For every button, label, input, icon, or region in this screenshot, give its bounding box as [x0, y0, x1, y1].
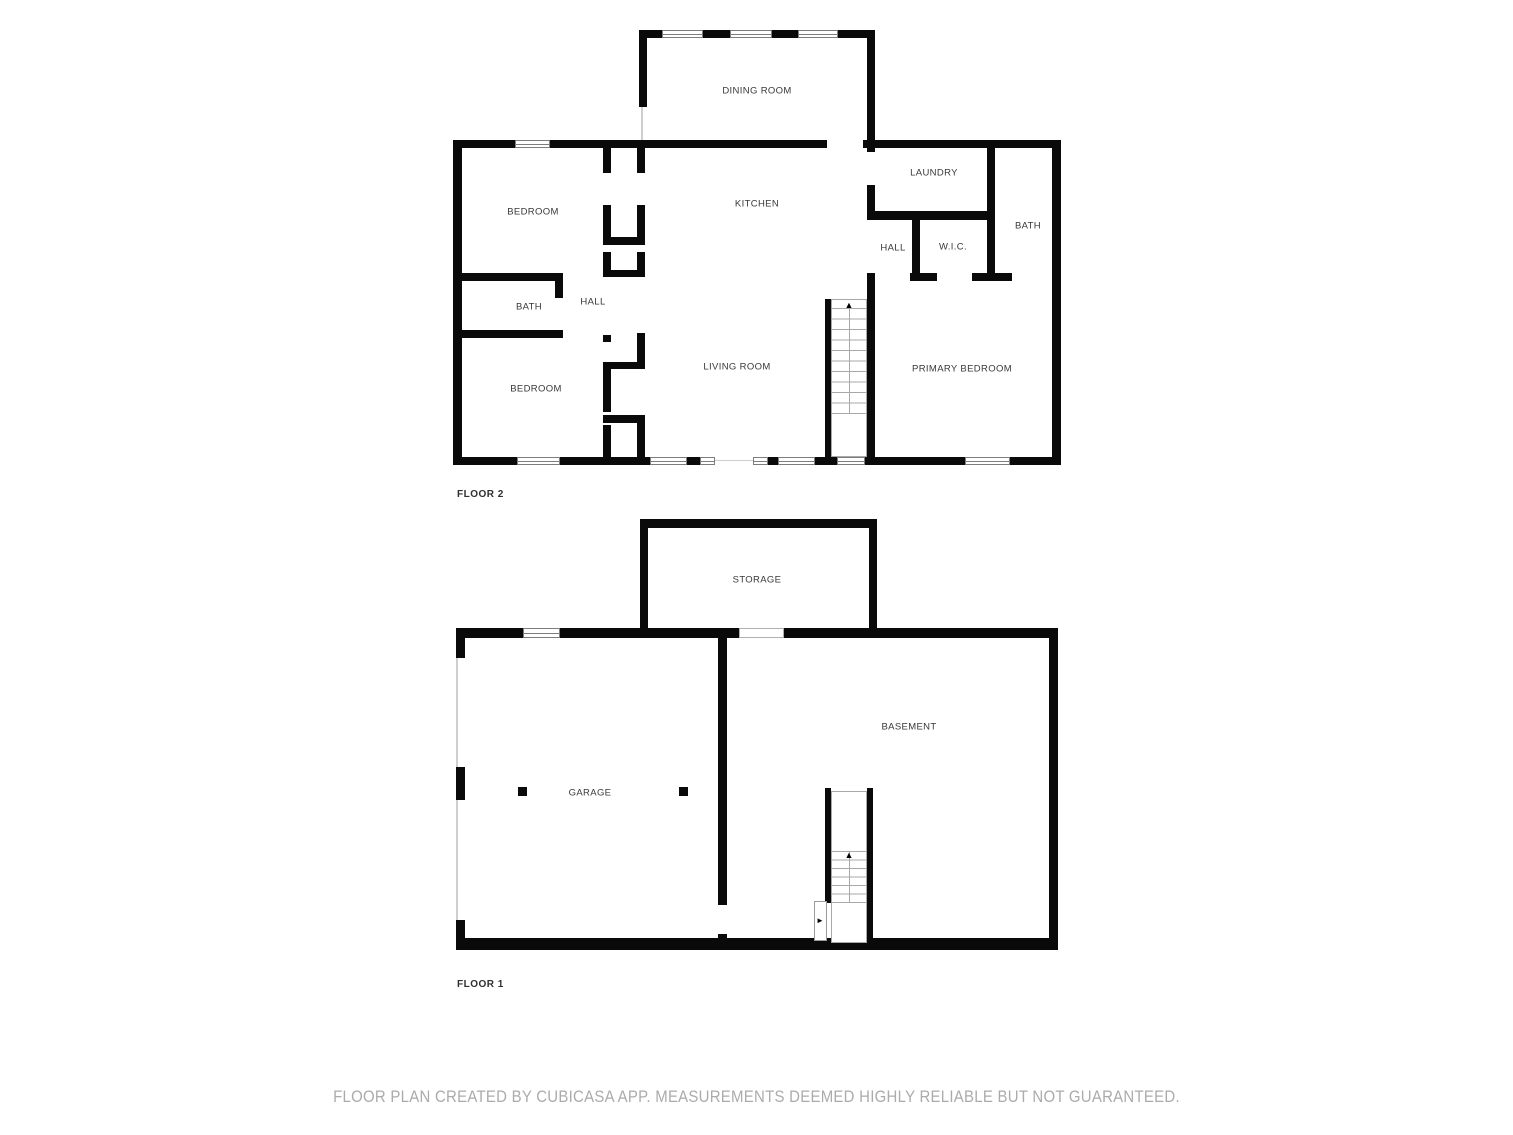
- window: [730, 30, 772, 38]
- wall: [453, 330, 563, 338]
- wall: [456, 628, 523, 638]
- wall: [815, 457, 837, 465]
- wall: [456, 767, 465, 800]
- room-label-laundry: LAUNDRY: [910, 168, 958, 179]
- wall: [603, 362, 645, 369]
- wall-opening: [456, 800, 458, 920]
- wall: [637, 148, 645, 173]
- wall: [640, 519, 877, 528]
- wall: [453, 457, 517, 465]
- wall: [784, 628, 1058, 638]
- wall-opening: [456, 658, 458, 767]
- wall: [603, 237, 645, 245]
- wall: [603, 335, 611, 342]
- room-label-living-room: LIVING ROOM: [703, 362, 770, 373]
- window: [753, 457, 768, 465]
- wall: [869, 519, 877, 638]
- room-label-bedroom-top: BEDROOM: [507, 207, 559, 218]
- garage-pillar: [679, 787, 688, 796]
- wall: [867, 185, 875, 220]
- wall: [456, 628, 465, 658]
- wall: [1049, 628, 1058, 950]
- wall: [603, 148, 611, 173]
- wall: [603, 425, 611, 457]
- wall: [867, 788, 873, 943]
- wall: [640, 519, 648, 638]
- wall: [555, 281, 563, 298]
- wall: [1010, 457, 1061, 465]
- wall: [560, 457, 650, 465]
- room-label-wic: W.I.C.: [939, 242, 967, 253]
- room-label-dining-room: DINING ROOM: [722, 86, 791, 97]
- window: [515, 140, 550, 148]
- room-label-storage: STORAGE: [733, 575, 782, 586]
- wall: [687, 457, 700, 465]
- stair-center-line: [849, 308, 850, 414]
- wall: [875, 211, 987, 220]
- stairs-up-arrow-icon: ▲: [845, 301, 854, 310]
- room-label-hall-left: HALL: [580, 297, 605, 308]
- window: [965, 457, 1010, 465]
- wall: [603, 362, 611, 412]
- window: [517, 457, 560, 465]
- wall: [910, 273, 937, 281]
- wall: [867, 140, 875, 152]
- wall: [603, 270, 645, 277]
- sliding-door-opening: [715, 460, 753, 461]
- wall: [972, 273, 1012, 281]
- wall: [863, 140, 1061, 148]
- wall: [768, 457, 778, 465]
- wall: [867, 273, 875, 457]
- footer-disclaimer: FLOOR PLAN CREATED BY CUBICASA APP. MEAS…: [91, 1087, 1422, 1107]
- window: [798, 30, 838, 38]
- staircase-floor2: [831, 299, 867, 457]
- wall: [867, 30, 875, 142]
- room-label-basement: BASEMENT: [881, 722, 936, 733]
- room-label-primary-bedroom: PRIMARY BEDROOM: [912, 364, 1012, 375]
- wall: [453, 273, 563, 281]
- floor-plan-canvas: ▲ DINING ROOM BEDROOM KITCHEN LAUNDRY HA…: [0, 0, 1513, 1135]
- wall: [453, 140, 515, 148]
- wall: [603, 415, 645, 423]
- floor-1-label: FLOOR 1: [457, 979, 504, 990]
- wall-opening: [641, 107, 643, 142]
- window: [650, 457, 687, 465]
- stairs-up-arrow-icon: ▲: [845, 851, 854, 860]
- wall: [1052, 140, 1061, 465]
- wall: [453, 140, 462, 465]
- wall: [865, 457, 965, 465]
- wall: [456, 938, 1058, 950]
- wall: [912, 220, 920, 281]
- garage-pillar: [518, 787, 527, 796]
- floor-2-label: FLOOR 2: [457, 489, 504, 500]
- wall: [550, 140, 827, 148]
- wall: [639, 30, 647, 107]
- window: [523, 628, 560, 638]
- window: [837, 457, 865, 465]
- room-label-kitchen: KITCHEN: [735, 199, 779, 210]
- room-label-bath-left: BATH: [516, 302, 542, 313]
- window: [778, 457, 815, 465]
- door-direction-arrow-icon: ►: [816, 917, 824, 925]
- room-label-garage: GARAGE: [569, 788, 612, 799]
- room-label-bedroom-bottom: BEDROOM: [510, 384, 562, 395]
- wall: [560, 628, 739, 638]
- door-opening: [739, 628, 784, 638]
- wall: [718, 934, 727, 944]
- room-label-bath-right: BATH: [1015, 221, 1041, 232]
- room-label-hall-right: HALL: [880, 243, 905, 254]
- staircase-floor1: [831, 791, 867, 943]
- window: [662, 30, 703, 38]
- window: [700, 457, 715, 465]
- wall: [718, 638, 727, 905]
- wall: [987, 148, 995, 281]
